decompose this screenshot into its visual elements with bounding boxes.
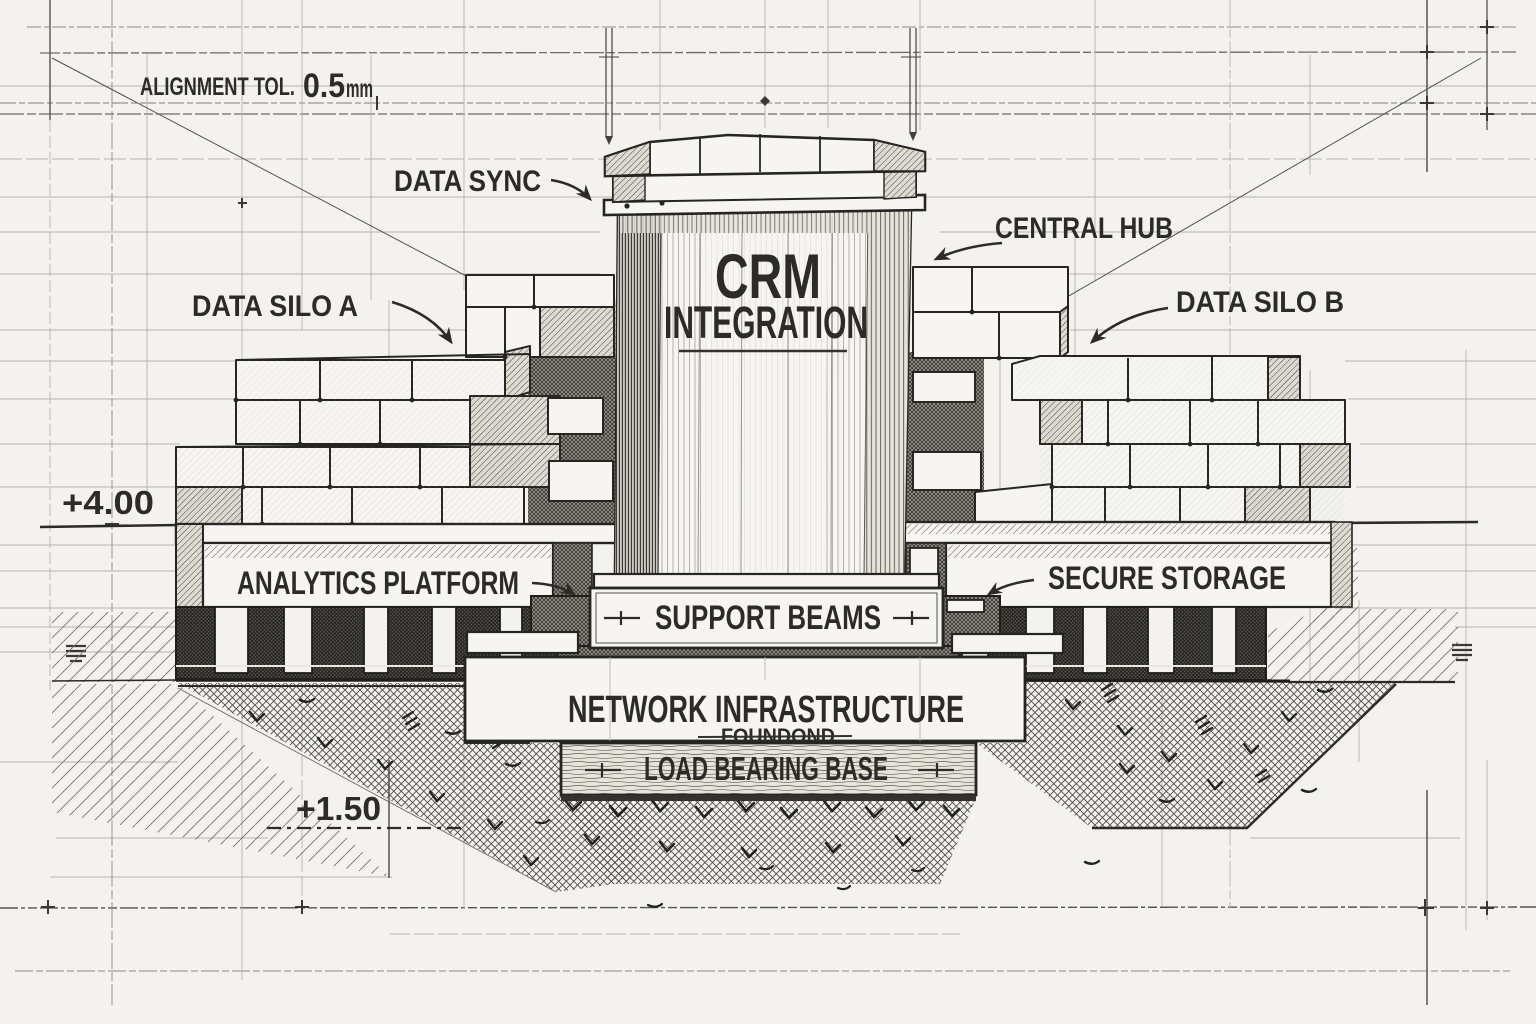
svg-text:LOAD BEARING BASE: LOAD BEARING BASE: [644, 750, 888, 787]
svg-text:ANALYTICS PLATFORM: ANALYTICS PLATFORM: [237, 565, 519, 601]
svg-text:INTEGRATION: INTEGRATION: [664, 297, 868, 348]
svg-text:DATA SYNC: DATA SYNC: [394, 165, 541, 198]
svg-text:CENTRAL HUB: CENTRAL HUB: [995, 212, 1173, 245]
svg-text:DATA SILO A: DATA SILO A: [192, 290, 358, 323]
svg-text:SECURE STORAGE: SECURE STORAGE: [1048, 560, 1286, 596]
svg-text:DATA SILO B: DATA SILO B: [1176, 286, 1344, 319]
svg-text:+1.50: +1.50: [296, 790, 381, 827]
svg-text:+4.00: +4.00: [62, 484, 154, 521]
svg-text:ALIGNMENT TOL.: ALIGNMENT TOL.: [140, 73, 295, 101]
svg-text:SUPPORT BEAMS: SUPPORT BEAMS: [655, 599, 881, 637]
